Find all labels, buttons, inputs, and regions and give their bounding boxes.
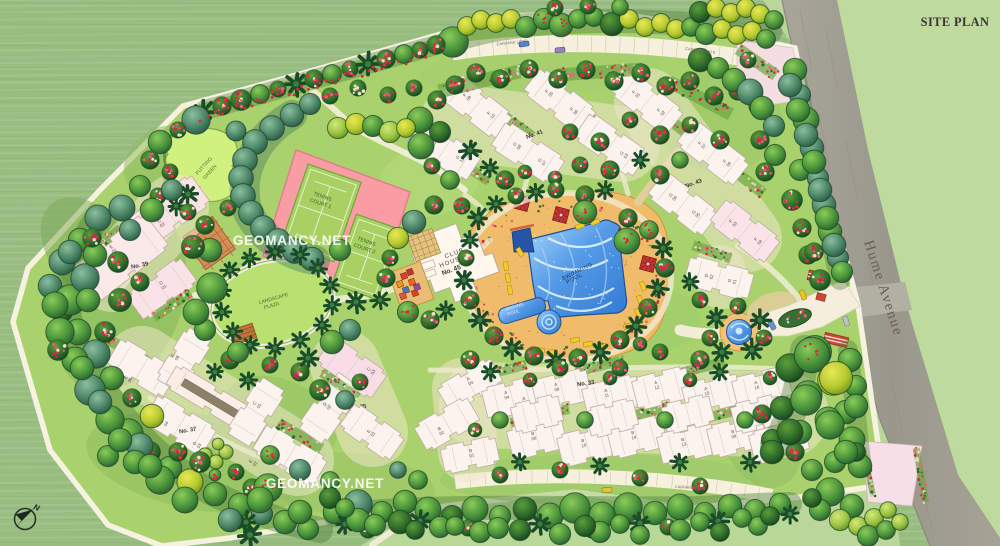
svg-text:GEOMANCY.NET: GEOMANCY.NET [233, 233, 351, 248]
svg-text:GEOMANCY.NET: GEOMANCY.NET [266, 476, 384, 491]
svg-text:SITE PLAN: SITE PLAN [921, 15, 990, 29]
